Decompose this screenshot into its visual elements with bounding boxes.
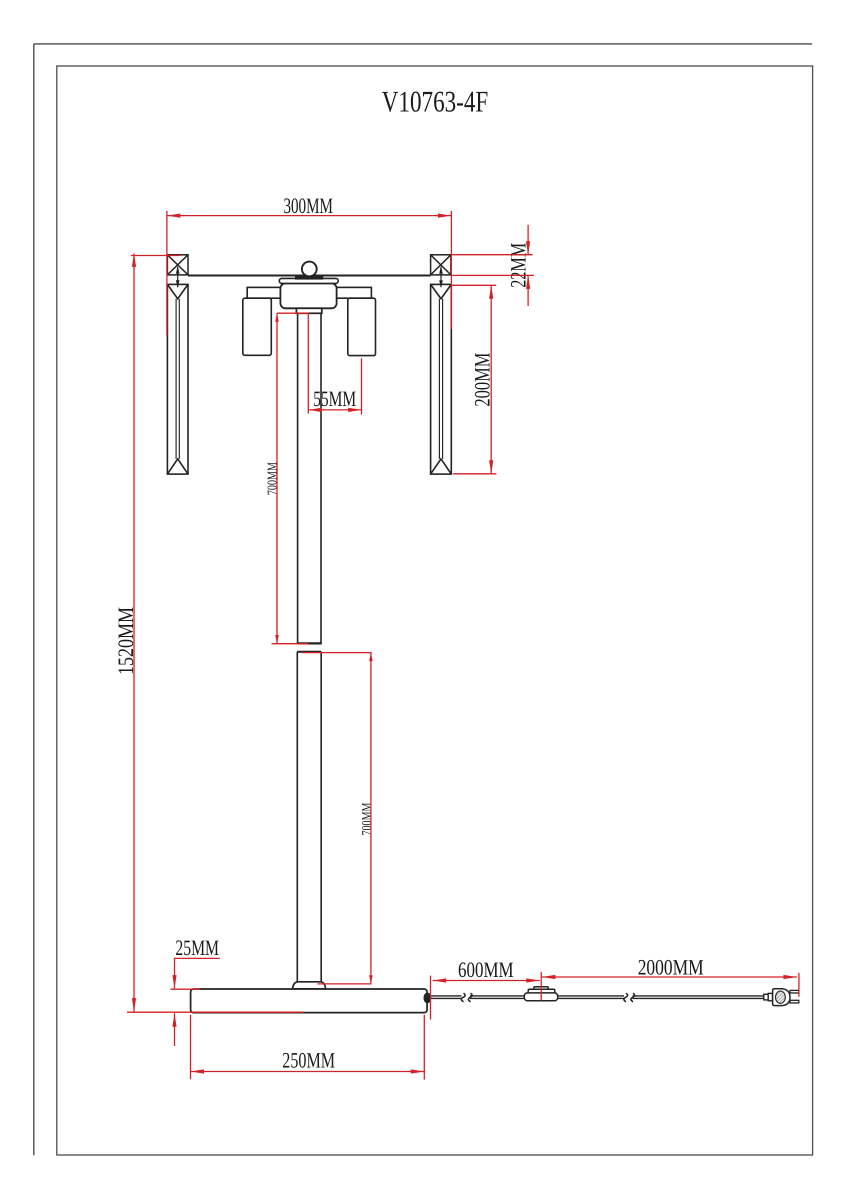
svg-text:300MM: 300MM [283, 193, 333, 218]
svg-text:2000MM: 2000MM [638, 954, 704, 979]
svg-text:V10763-4F: V10763-4F [382, 86, 489, 119]
svg-text:25MM: 25MM [175, 935, 219, 960]
svg-text:22MM: 22MM [506, 243, 531, 288]
svg-text:55MM: 55MM [313, 386, 356, 411]
svg-text:250MM: 250MM [282, 1047, 335, 1072]
svg-text:600MM: 600MM [458, 957, 514, 982]
